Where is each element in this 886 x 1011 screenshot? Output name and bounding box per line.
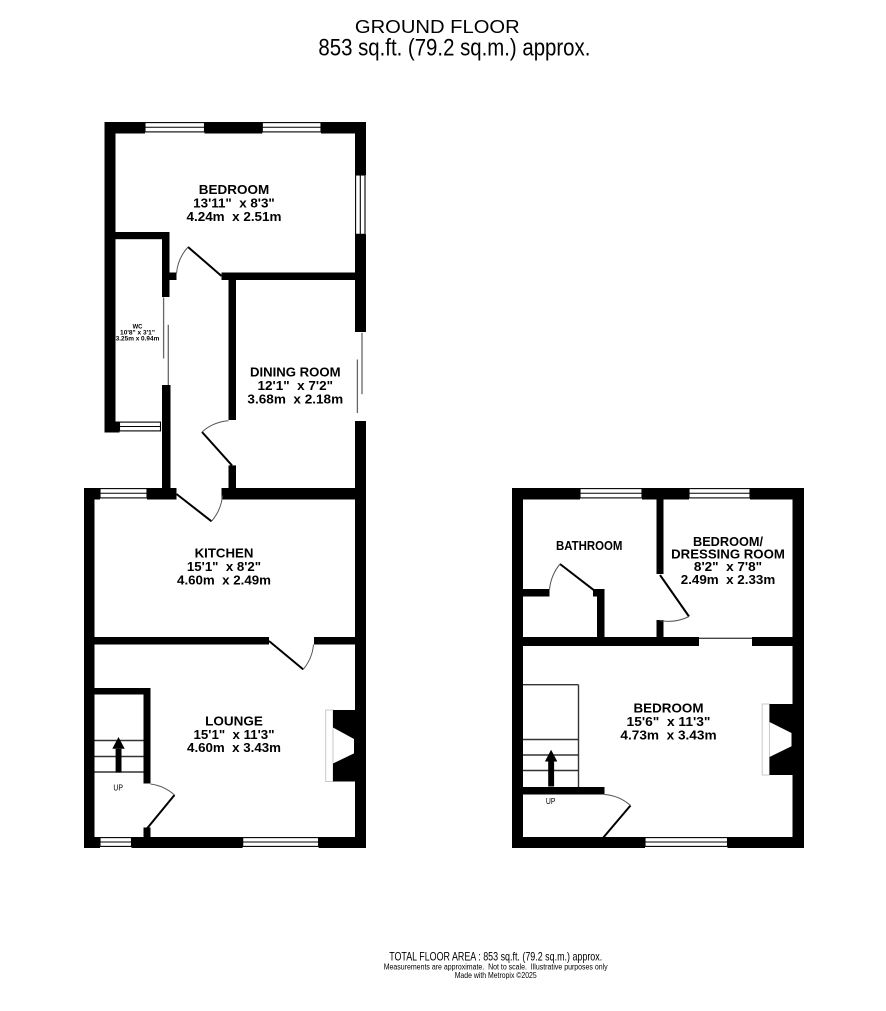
- svg-text:4.73m x 3.43m: 4.73m x 3.43m: [620, 728, 716, 743]
- svg-text:4.60m x 3.43m: 4.60m x 3.43m: [187, 740, 281, 755]
- svg-text:853 sq.ft. (79.2 sq.m.) approx: 853 sq.ft. (79.2 sq.m.) approx.: [318, 36, 590, 62]
- svg-text:Measurements are approximate.: Measurements are approximate. Not to sca…: [384, 963, 608, 972]
- svg-text:BATHROOM: BATHROOM: [556, 538, 622, 553]
- svg-text:UP: UP: [546, 796, 556, 806]
- svg-text:3.68m x 2.18m: 3.68m x 2.18m: [247, 391, 343, 406]
- svg-text:Made with Metropix ©2025: Made with Metropix ©2025: [455, 971, 537, 980]
- svg-text:3.25m x 0.94m: 3.25m x 0.94m: [116, 336, 160, 343]
- svg-text:UP: UP: [113, 782, 123, 792]
- svg-text:2.49m x 2.33m: 2.49m x 2.33m: [681, 572, 776, 587]
- svg-text:GROUND FLOOR: GROUND FLOOR: [355, 16, 520, 37]
- svg-text:4.24m x 2.51m: 4.24m x 2.51m: [187, 209, 282, 224]
- svg-text:4.60m x 2.49m: 4.60m x 2.49m: [177, 572, 271, 587]
